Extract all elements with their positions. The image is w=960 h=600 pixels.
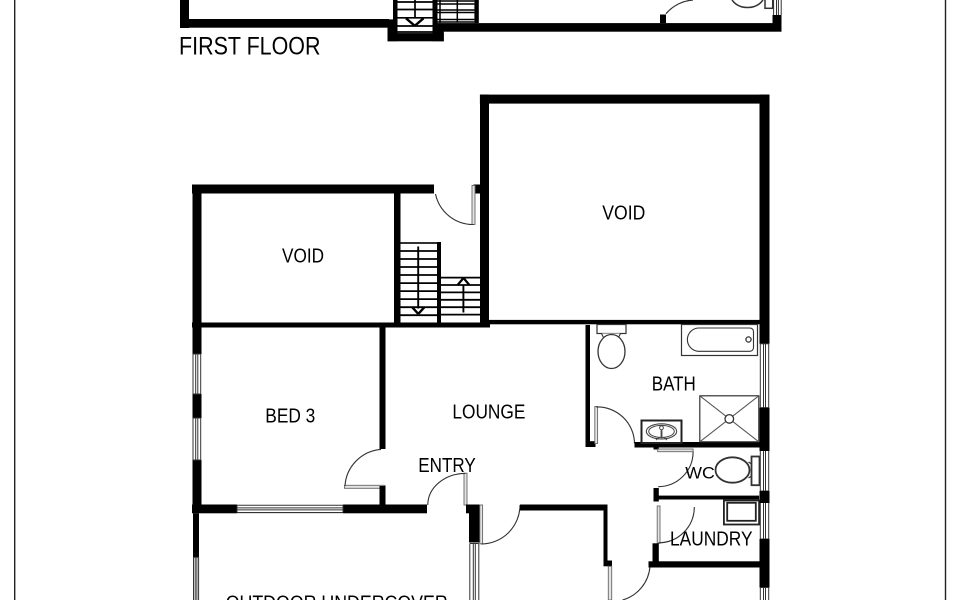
svg-text:WC: WC (685, 463, 715, 482)
svg-text:VOID: VOID (282, 245, 324, 267)
svg-text:LAUNDRY: LAUNDRY (670, 529, 753, 551)
svg-text:BED 3: BED 3 (265, 405, 315, 427)
svg-text:OUTDOOR UNDERCOVER: OUTDOOR UNDERCOVER (226, 593, 448, 600)
svg-text:FIRST FLOOR: FIRST FLOOR (179, 33, 321, 61)
svg-text:LOUNGE: LOUNGE (452, 401, 525, 423)
svg-text:BATH: BATH (652, 373, 696, 395)
svg-text:VOID: VOID (602, 202, 645, 224)
